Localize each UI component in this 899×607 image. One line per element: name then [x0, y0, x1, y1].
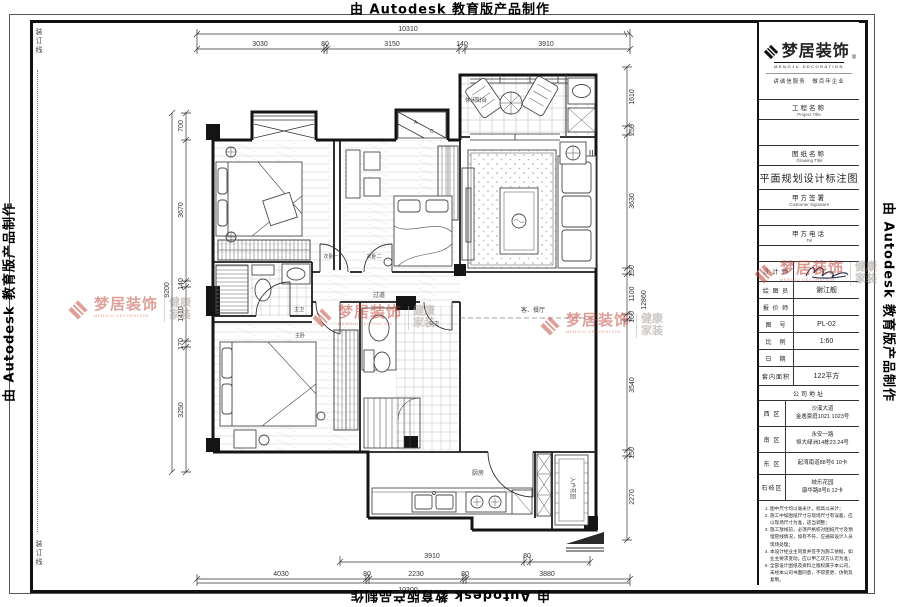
project-title-cn: 工程名称: [792, 102, 826, 112]
district-label: 石岐区: [759, 475, 786, 500]
pricer-row: 报 价 师: [759, 299, 859, 316]
autodesk-watermark-top: 由 Autodesk 教育版产品制作: [350, 0, 550, 18]
address-header: 公司地址: [759, 386, 859, 401]
district-label: 西 区: [759, 401, 786, 426]
scale-label: 比 例: [759, 333, 794, 349]
kitchen-fixtures: [372, 488, 532, 514]
dim-left-total: 9200: [164, 282, 171, 298]
dim: 3540: [629, 377, 636, 393]
date-value-empty: [794, 350, 859, 366]
note-item: 图中尺寸均以毫米计，标高以米计；: [770, 505, 856, 512]
room-label-living: 客、餐厅: [521, 306, 545, 314]
dim: 150: [629, 265, 636, 277]
general-notes: 图中尺寸均以毫米计，标高以米计； 施工中如图纸尺寸与现场尺寸有误差，应以现场尺寸…: [759, 501, 859, 587]
district-label: 南 区: [759, 427, 786, 452]
brand-name: 梦居装饰: [780, 262, 844, 277]
dim: 3880: [539, 571, 555, 578]
brand-tag: 家装: [855, 274, 877, 286]
address-line: 起湾南道88号6 10卡: [798, 460, 848, 468]
autodesk-watermark-bottom: 由 Autodesk 教育版产品制作: [350, 588, 550, 607]
brand-diamond-icon: [752, 262, 776, 286]
brand-name-en: MENGJU DECORATION: [774, 62, 844, 69]
brand-dots: · · · · · · · · · ·: [338, 326, 402, 330]
brand-tag: 家装: [413, 318, 435, 330]
dims-left-text: 700 3670 140 1410 170 3250 9200: [164, 120, 185, 418]
dim: 2270: [629, 489, 636, 505]
dim: 3630: [629, 193, 636, 209]
dim: 3030: [252, 41, 268, 48]
brand-diamond-icon: [762, 43, 780, 61]
dim: 2230: [408, 571, 424, 578]
project-title-header: 工程名称 Project Title: [759, 100, 859, 120]
room-label-bed2: 次卧二: [366, 253, 381, 260]
area-label: 套内面积: [759, 367, 794, 385]
dim: 250: [629, 124, 636, 136]
dim: 4030: [273, 571, 289, 578]
brand-dots: · · · · · · · · · ·: [94, 318, 158, 322]
dim: 3910: [424, 553, 440, 560]
address-line: 康华路8号6 12卡: [802, 488, 843, 496]
titleblock-logo: 梦居装饰 ® MENGJU DECORATION 讲诚信服务 做百年企业: [759, 22, 859, 100]
dim: 1100: [629, 286, 636, 301]
dim: 80: [363, 571, 371, 578]
slope-symbol: [566, 532, 604, 551]
scale-row: 比 例 1:60: [759, 333, 859, 350]
brand-tag: 家装: [169, 310, 191, 322]
dim: 150: [629, 447, 636, 459]
dim: 3670: [178, 202, 185, 218]
date-row: 日 期: [759, 350, 859, 367]
note-item: 施工放线前，必须严格校对图纸尺寸及预埋管线情况，如有不符，应通知设计人员现场处理…: [770, 526, 856, 547]
brand-name: 梦居装饰: [94, 298, 158, 313]
room-label-mbath: 主卫: [294, 306, 304, 313]
dim: 1610: [629, 89, 636, 105]
pricer-label: 报 价 师: [759, 299, 794, 315]
dims-top-text: 10310 3030 80 3150 140 3910: [252, 26, 554, 48]
brand-diamond-icon: [538, 314, 562, 338]
closet-mark-c: C: [430, 129, 434, 135]
room-label-entry: 入户花园: [569, 477, 577, 500]
entry-garden: [537, 454, 588, 525]
note-item: 全部设计图纸及资料之版权属于本公司，未经本公司书面同意，不得变更、仿制及复制。: [770, 562, 856, 583]
brand-name: 梦居装饰: [782, 37, 850, 61]
drawing-no-row: 图 号 PL-02: [759, 316, 859, 333]
dim: 3250: [178, 402, 185, 418]
room-label-balcony: 休闲阳台: [465, 96, 488, 104]
tel-empty: [759, 246, 859, 262]
dim: 170: [178, 338, 185, 350]
address-row-west: 西 区 沙溪大道金逸豪庭1021 1023号: [759, 401, 859, 427]
brand-diamond-icon: [310, 306, 334, 330]
dim: 700: [178, 120, 185, 132]
brand-dots: · · · · · · · · · ·: [780, 282, 844, 286]
district-label: 东 区: [759, 453, 786, 474]
room-label-bed1: 次卧一: [323, 253, 338, 260]
autodesk-watermark-right: 由 Autodesk 教育版产品制作: [881, 202, 899, 402]
dim-right-total: 12860: [641, 290, 648, 310]
customer-signature-en: Customer Signature: [789, 202, 829, 207]
brand-reg-mark: ®: [852, 55, 856, 61]
address-row-shiqi: 石岐区 岐乐花园康华路8号6 12卡: [759, 475, 859, 501]
dim-top-total: 10310: [398, 26, 418, 33]
brand-watermark: 梦居装饰 MENGJU DECORATION · · · · · · · · ·…: [66, 298, 191, 322]
brand-watermark: 梦居装饰 MENGJU DECORATION · · · · · · · · ·…: [310, 306, 435, 330]
dim: 80: [461, 571, 469, 578]
dims-right-text: 1610 250 3630 150 1100 160 3540 150 2270…: [629, 89, 648, 505]
brand-tag: 家装: [641, 326, 663, 338]
address-line: 永安一路: [811, 432, 833, 440]
address-line: 沙溪大道: [811, 406, 833, 414]
area-value: 122平方: [794, 367, 859, 385]
project-title-en: Project Title: [797, 112, 821, 117]
brand-slogan: 讲诚信服务 做百年企业: [766, 73, 852, 85]
brand-name: 梦居装饰: [566, 314, 630, 329]
brand-watermark: 梦居装饰 MENGJU DECORATION · · · · · · · · ·…: [538, 314, 663, 338]
tel-en: Tel: [806, 238, 812, 243]
address-line: 岐乐花园: [811, 480, 833, 488]
customer-signature-header: 甲方签署 Customer Signature: [759, 190, 859, 210]
note-item: 本设计经业主同意并签字为施工依据，如业主要求变动，应以甲乙双方认可为准；: [770, 548, 856, 562]
tel-cn: 甲方电话: [792, 228, 826, 238]
room-label-corridor: 过道: [373, 291, 385, 299]
room-label-kitchen: 厨房: [472, 469, 484, 477]
dim: 80: [523, 553, 531, 560]
drawing-title-cn: 图纸名称: [792, 148, 826, 158]
room-label-master: 主卧: [295, 332, 305, 339]
dim: 3150: [384, 41, 400, 48]
address-line: 恒大绿洲14栋23 24号: [796, 440, 849, 448]
drawing-no-value: PL-02: [794, 316, 859, 332]
drawing-title-en: Drawing Title: [796, 158, 822, 163]
pricer-value-empty: [794, 299, 859, 315]
drawing-title-header: 图纸名称 Drawing Title: [759, 146, 859, 166]
note-item: 施工中如图纸尺寸与现场尺寸有误差，应以现场尺寸为准，适当调整；: [770, 512, 856, 526]
area-row: 套内面积 122平方: [759, 367, 859, 386]
brand-diamond-icon: [66, 298, 90, 322]
address-line: 金逸豪庭1021 1023号: [796, 414, 850, 422]
customer-signature-cn: 甲方签署: [792, 192, 826, 202]
brand-dots: · · · · · · · · · ·: [566, 334, 630, 338]
customer-signature-empty: [759, 210, 859, 226]
address-row-south: 南 区 永安一路恒大绿洲14栋23 24号: [759, 427, 859, 453]
dim: 140: [178, 278, 185, 290]
brand-watermark: 梦居装饰 MENGJU DECORATION · · · · · · · · ·…: [752, 262, 877, 286]
drawing-title-value: 平面规划设计标注图: [759, 166, 859, 190]
cad-sheet: { "edge": { "autodesk": "由 Autodesk 教育版产…: [0, 0, 899, 605]
scale-value: 1:60: [794, 333, 859, 349]
dims-left: [169, 110, 191, 475]
brand-name: 梦居装饰: [338, 306, 402, 321]
closet-mark-a: A: [414, 120, 418, 126]
tel-header: 甲方电话 Tel: [759, 226, 859, 246]
dim: 3910: [538, 41, 554, 48]
title-block: 梦居装饰 ® MENGJU DECORATION 讲诚信服务 做百年企业 工程名…: [757, 22, 859, 585]
bedroom1-furniture: [216, 147, 310, 260]
project-title-value-empty: [759, 120, 859, 146]
drawing-no-label: 图 号: [759, 316, 794, 332]
address-header-label: 公司地址: [793, 389, 825, 398]
address-row-east: 东 区 起湾南道88号6 10卡: [759, 453, 859, 475]
dim: 140: [456, 41, 468, 48]
dim: 80: [321, 41, 329, 48]
autodesk-watermark-left: 由 Autodesk 教育版产品制作: [0, 202, 18, 402]
date-label: 日 期: [759, 350, 794, 366]
